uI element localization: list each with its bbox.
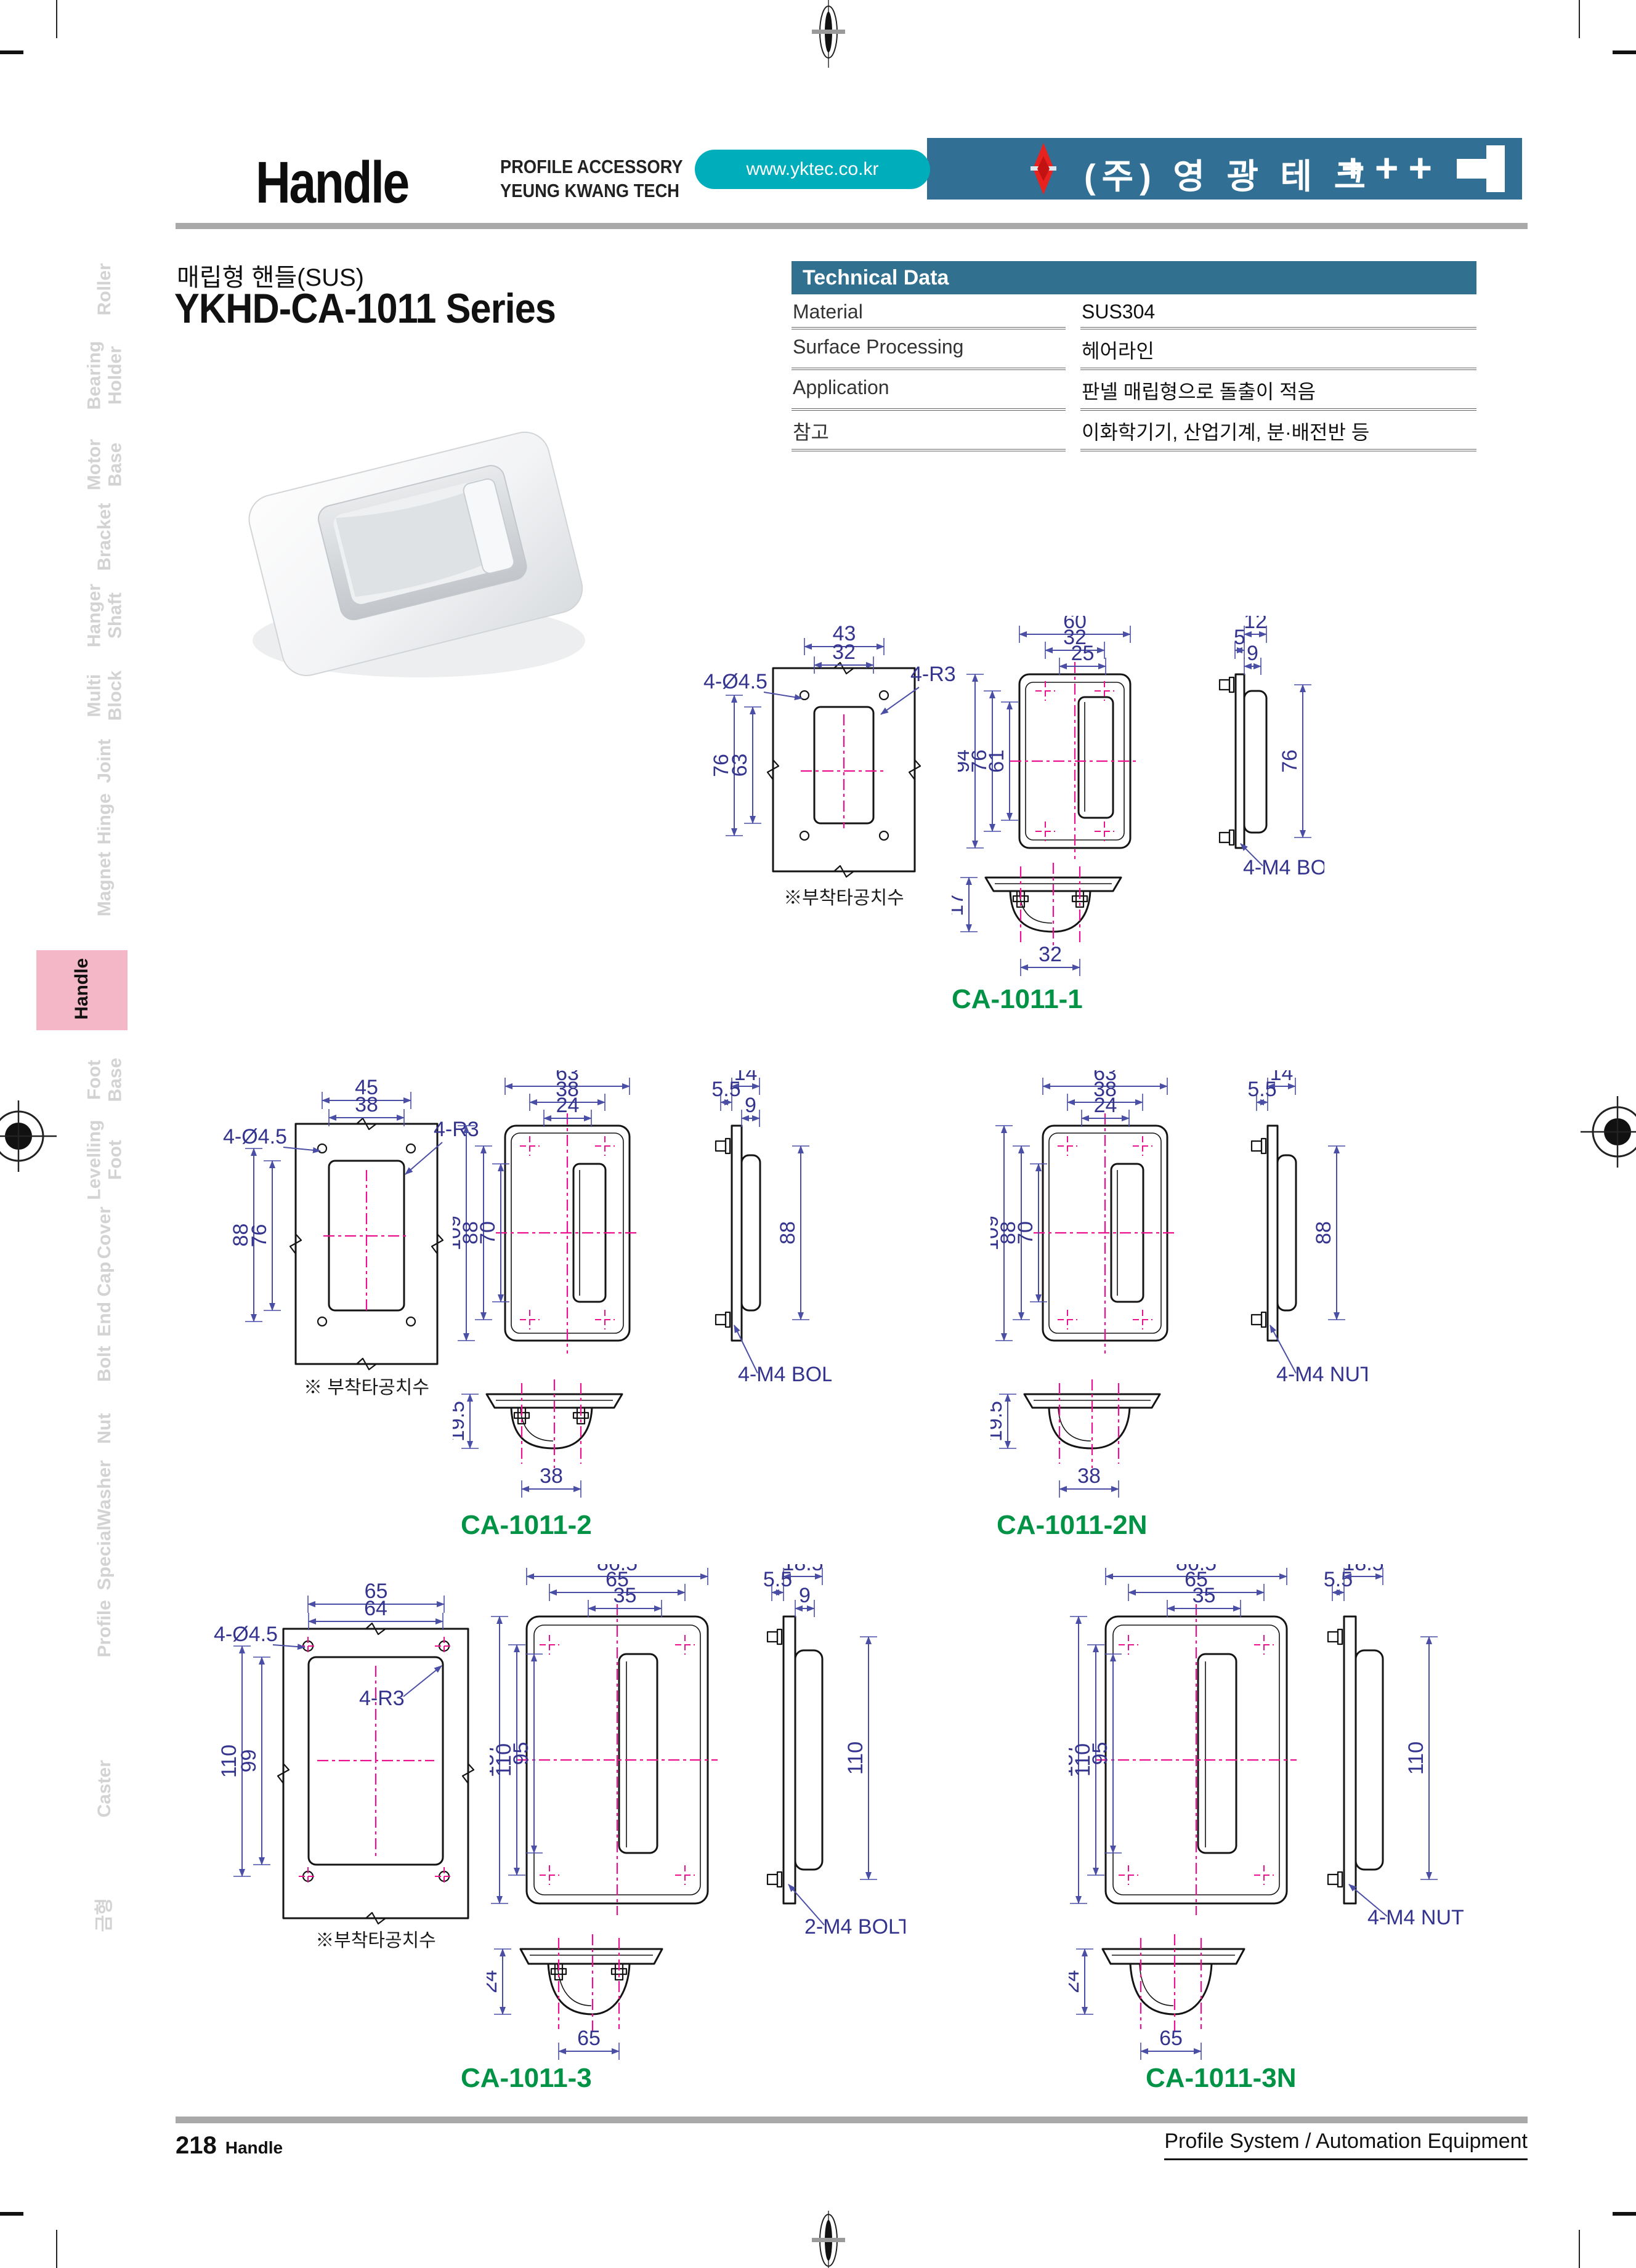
dimension-label: 24 [556, 1094, 580, 1117]
subtitle-line-1: PROFILE ACCESSORY [500, 155, 683, 179]
part-label-ca-1011-2: CA-1011-2 [461, 1510, 592, 1541]
technical-data-rows: MaterialSUS304Surface Processing헤어라인Appl… [792, 294, 1476, 451]
part-label-ca-1011-3n: CA-1011-3N [1146, 2063, 1297, 2094]
drawing-ca-1011-3-mount-template: 6564110994-Ø4.54-R3※부착타공치수 [213, 1573, 533, 1952]
dimension-label: 38 [540, 1464, 563, 1488]
dimension-label: 24 [1094, 1094, 1117, 1117]
crop-mark [0, 50, 23, 54]
drawing-text: ※부착타공치수 [784, 888, 904, 908]
crop-mark [56, 2230, 57, 2268]
footer-right-text: Profile System / Automation Equipment [1164, 2129, 1528, 2160]
dimension-label: 35 [613, 1584, 637, 1607]
technical-data-row: 참고이화학기기, 산업기계, 분·배전반 등 [792, 411, 1476, 451]
tech-row-value: 판넬 매립형으로 돌출이 적음 [1080, 370, 1476, 411]
footer-page-number: 218 [176, 2132, 217, 2159]
dimension-label: 61 [985, 749, 1008, 773]
dimension-label: 12 [1244, 616, 1267, 633]
crop-mark [1579, 2230, 1580, 2268]
drawing-text: ※ 부착타공치수 [304, 1378, 429, 1398]
drawing-text: 4-M4 NUT [1276, 1363, 1367, 1386]
sidebar-item-caster[interactable]: Caster [94, 1727, 115, 1850]
band-notch [1457, 159, 1491, 179]
dimension-label: 88 [776, 1221, 800, 1245]
dimension-label: 38 [355, 1093, 378, 1116]
dimension-label: 64 [364, 1597, 387, 1620]
subtitle-line-2: YEUNG KWANG TECH [500, 179, 683, 203]
dimension-label: 99 [237, 1749, 261, 1773]
dimension-label: 65 [577, 2027, 601, 2050]
drawing-text: 4-M4 NUT [1367, 1906, 1464, 1929]
footer-section: Handle [225, 2138, 283, 2157]
drawing-text: 4-M4 BOLT [738, 1363, 832, 1386]
drawing-ca-1011-3n-front-view: 86.5653513711095 [1069, 1564, 1309, 1943]
page-title: Handle [256, 149, 408, 217]
drawing-text: 4-R3 [359, 1687, 405, 1710]
dimension-label: 24 [487, 1970, 501, 1993]
registration-bullseye-right [1581, 1095, 1636, 1169]
technical-data-row: MaterialSUS304 [792, 294, 1476, 329]
dimension-label: 19.5 [990, 1401, 1006, 1442]
sidebar-item-label: Magnet [94, 823, 115, 946]
drawing-ca-1011-2-bottom-view: 19.538 [453, 1368, 656, 1528]
dimension-label: 110 [1404, 1741, 1428, 1775]
technical-data-row: Surface Processing헤어라인 [792, 329, 1476, 370]
technical-data-header: Technical Data [792, 261, 1476, 294]
sidebar-item-금형[interactable]: 금형 [94, 1854, 115, 1977]
technical-data-row: Application판넬 매립형으로 돌출이 적음 [792, 370, 1476, 411]
dimension-label: 5.5 [1247, 1078, 1276, 1101]
crop-mark [1613, 2212, 1636, 2216]
drawing-ca-1011-2-side-view: 145.59884-M4 BOLT [665, 1070, 832, 1390]
drawing-ca-1011-1-front-view: 603225947661 [958, 616, 1180, 881]
website-url: www.yktec.co.kr [746, 159, 878, 180]
drawing-text: 4-Ø4.5 [223, 1125, 287, 1148]
drawing-ca-1011-3-front-view: 86.5653513711095 [490, 1564, 730, 1943]
registration-mark-top [801, 0, 856, 68]
dimension-label: 95 [509, 1742, 533, 1766]
dimension-label: 65 [1159, 2027, 1183, 2050]
dimension-label: 70 [476, 1221, 500, 1245]
website-url-pill: www.yktec.co.kr [695, 150, 930, 189]
drawing-text: 4-R3 [910, 663, 956, 686]
dimension-label: 5.5 [763, 1568, 792, 1591]
drawing-ca-1011-2n-side-view: 145.5884-M4 NUT [1201, 1070, 1367, 1390]
dimension-label: 17 [952, 893, 968, 916]
crop-mark [56, 0, 57, 38]
tech-row-label: Material [792, 294, 1066, 329]
part-label-ca-1011-3: CA-1011-3 [461, 2063, 592, 2094]
tech-row-value: SUS304 [1080, 294, 1476, 329]
crop-mark [1579, 0, 1580, 38]
drawing-text: 4-M4 BOLT [1243, 856, 1324, 879]
dimension-label: 88 [1312, 1221, 1335, 1245]
tech-row-value: 이화학기기, 산업기계, 분·배전반 등 [1080, 411, 1476, 451]
registration-mark-bottom [801, 2211, 856, 2268]
footer-page-info: 218Handle [176, 2132, 283, 2160]
catalog-page: Handle PROFILE ACCESSORY YEUNG KWANG TEC… [0, 0, 1636, 2268]
tech-row-value: 헤어라인 [1080, 329, 1476, 370]
company-name: (주) 영 광 테 크 [1084, 149, 1372, 199]
drawing-ca-1011-3-side-view: 18.55.591102-M4 BOLT [715, 1564, 905, 1943]
page-subtitle: PROFILE ACCESSORY YEUNG KWANG TECH [500, 155, 683, 203]
product-photo [185, 394, 641, 696]
company-logo-icon [1024, 142, 1063, 196]
sidebar-item-magnet[interactable]: Magnet [94, 823, 115, 946]
drawing-text: 2-M4 BOLT [804, 1915, 905, 1939]
plus-ornament: +++ [1341, 144, 1442, 191]
drawing-ca-1011-1-side-view: 1259764-M4 BOLT [1170, 616, 1324, 881]
crop-mark [0, 2212, 23, 2216]
dimension-label: 32 [1039, 943, 1062, 966]
dimension-label: 19.5 [453, 1401, 469, 1442]
dimension-label: 18.5 [1343, 1564, 1383, 1575]
crop-mark [1613, 50, 1636, 54]
drawing-ca-1011-2-front-view: 6338241098870 [453, 1070, 668, 1390]
dimension-label: 25 [1071, 642, 1095, 665]
part-label-ca-1011-2n: CA-1011-2N [997, 1510, 1148, 1541]
registration-bullseye-left [0, 1099, 62, 1173]
dimension-label: 70 [1014, 1221, 1037, 1245]
dimension-label: 110 [844, 1741, 867, 1775]
drawing-ca-1011-1-bottom-view: 1732 [952, 853, 1155, 998]
dimension-label: 32 [832, 640, 856, 664]
dimension-label: 76 [248, 1224, 271, 1248]
dimension-label: 5 [1234, 626, 1245, 649]
part-label-ca-1011-1: CA-1011-1 [952, 984, 1083, 1015]
drawing-text: 4-Ø4.5 [703, 670, 767, 693]
dimension-label: 9 [1247, 642, 1258, 665]
dimension-label: 63 [728, 754, 751, 777]
tech-row-label: Surface Processing [792, 329, 1066, 370]
dimension-label: 76 [1278, 749, 1302, 773]
sidebar-item-profile[interactable]: Profile [94, 1567, 115, 1690]
drawing-text: 4-Ø4.5 [214, 1623, 278, 1646]
sidebar-item-label: Profile [94, 1567, 115, 1690]
drawing-ca-1011-2n-front-view: 6338241098870 [990, 1070, 1206, 1390]
sidebar-item-label: Caster [94, 1727, 115, 1850]
brand-band: (주) 영 광 테 크 +++ [927, 138, 1522, 200]
footer-rule [176, 2117, 1528, 2123]
tech-row-label: Application [792, 370, 1066, 411]
drawing-ca-1011-1-mount-template: 433276634-Ø4.54-R3※부착타공치수 [702, 622, 967, 911]
product-series-title: YKHD-CA-1011 Series [174, 285, 556, 333]
drawing-text: ※부착타공치수 [315, 1931, 436, 1951]
dimension-label: 95 [1088, 1742, 1112, 1766]
dimension-label: 35 [1193, 1584, 1216, 1607]
drawing-ca-1011-3n-bottom-view: 2465 [1069, 1924, 1278, 2081]
drawing-ca-1011-3-bottom-view: 2465 [487, 1924, 696, 2081]
dimension-label: 5.5 [711, 1078, 740, 1101]
header-rule [176, 223, 1528, 229]
technical-data-table: Technical Data MaterialSUS304Surface Pro… [792, 261, 1476, 451]
dimension-label: 24 [1069, 1970, 1083, 1993]
sidebar-item-label: 금형 [94, 1854, 115, 1977]
drawing-ca-1011-2n-bottom-view: 19.538 [990, 1368, 1194, 1528]
dimension-label: 9 [745, 1094, 756, 1117]
drawing-ca-1011-3n-side-view: 5.518.51104-M4 NUT [1275, 1564, 1466, 1943]
dimension-label: 9 [799, 1584, 811, 1607]
dimension-label: 38 [1077, 1464, 1101, 1488]
tech-row-label: 참고 [792, 411, 1066, 451]
